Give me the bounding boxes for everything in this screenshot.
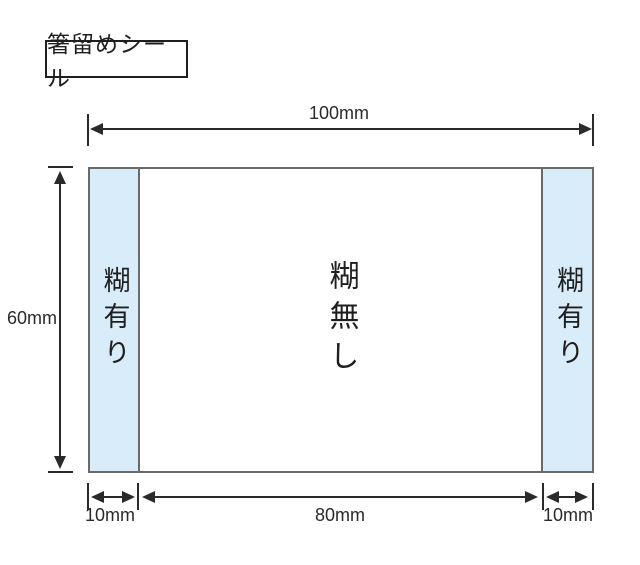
height-dimension-label: 60mm [6,308,58,329]
width-dimension-label: 100mm [289,103,389,124]
title-box: 箸留めシール [45,40,188,78]
arrow-line [93,128,589,130]
arrow-line [59,174,61,466]
glue-strip-right-label: 糊有り [554,266,581,374]
right-glue-dimension-label: 10mm [543,505,593,526]
glue-strip-left: 糊有り [90,169,140,471]
width-dimension-arrow [90,123,592,135]
left-glue-dimension-label: 10mm [85,505,135,526]
no-glue-area: 糊無し [140,169,541,471]
arrow-line [94,496,132,498]
left-glue-dimension-arrow [91,491,135,503]
glue-strip-left-label: 糊有り [101,266,128,374]
no-glue-area-label: 糊無し [326,260,356,380]
right-glue-dimension-arrow [546,491,588,503]
glue-strip-right: 糊有り [541,169,592,471]
width-dim-tick-right [592,114,594,146]
diagram-canvas: 箸留めシール 100mm 糊有り 糊無し 糊有り 60mm 10mm 80m [0,0,640,565]
no-glue-dimension-label: 80mm [290,505,390,526]
height-dim-tick-top [48,166,73,168]
width-dim-tick-left [87,114,89,146]
arrow-line [145,496,535,498]
seal-sheet: 糊有り 糊無し 糊有り [88,167,594,473]
no-glue-dimension-arrow [142,491,538,503]
height-dim-tick-bottom [48,471,73,473]
page-title: 箸留めシール [47,25,186,93]
arrow-line [549,496,585,498]
bottom-dim-tick-2 [137,483,139,510]
